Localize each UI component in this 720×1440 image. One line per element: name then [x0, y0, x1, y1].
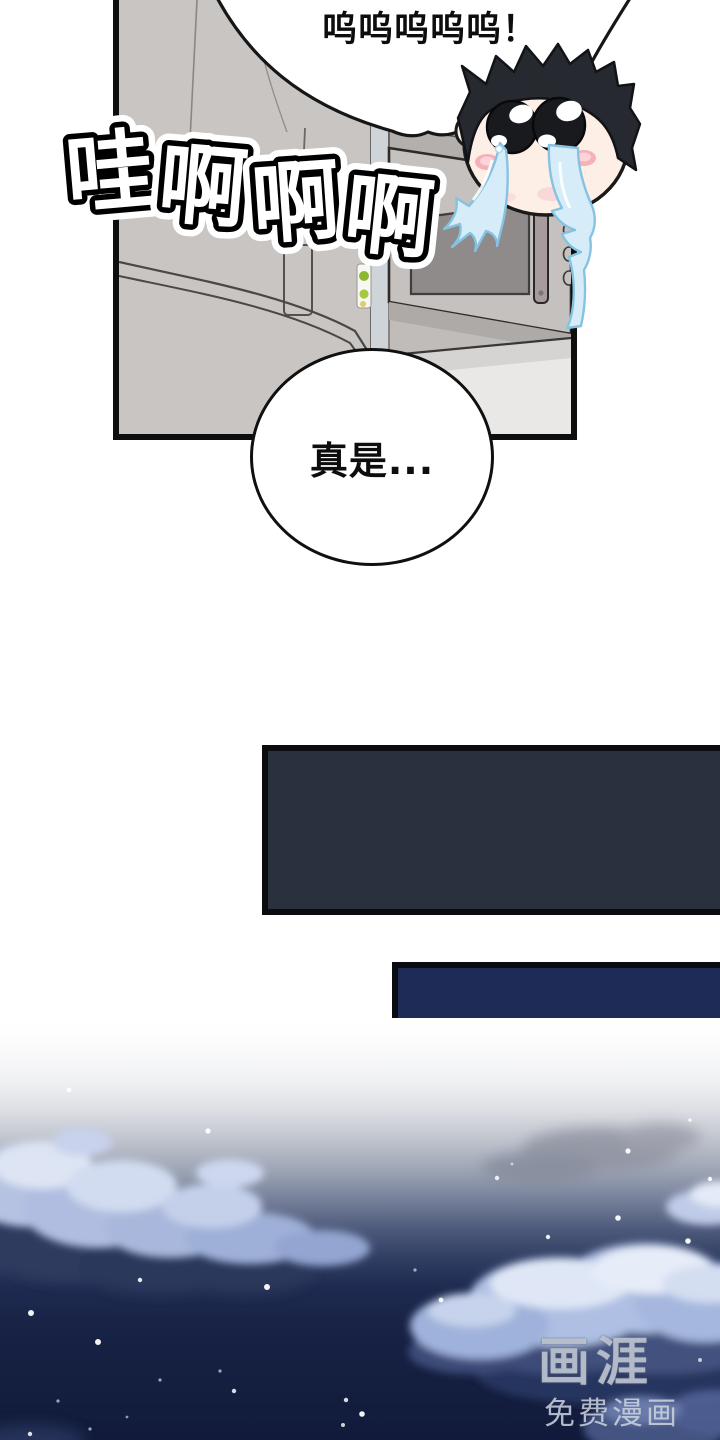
sfx-char: 啊 — [249, 148, 344, 257]
cloud-right-small — [666, 1181, 720, 1225]
sfx-scream-text: 哇 哇 啊 啊 啊 啊 啊 啊 — [28, 92, 468, 302]
panel-dark-wide — [262, 745, 720, 915]
cloud-wisp-center — [482, 1124, 700, 1184]
sfx-char: 啊 — [340, 161, 438, 273]
watermark-subtitle: 免费漫画 — [544, 1388, 680, 1433]
thought-bubble-text: 真是... — [310, 430, 434, 485]
watermark-logo: 画涯 — [538, 1320, 654, 1395]
sfx-char: 啊 — [155, 131, 252, 241]
tear-sparkle — [496, 146, 503, 153]
sfx-char: 哇 — [62, 117, 159, 227]
thought-bubble: 真是... — [250, 348, 494, 566]
crying-chibi-face — [440, 40, 650, 330]
comic-page: 呜呜呜呜呜！ 哇 哇 啊 啊 啊 啊 啊 啊 — [0, 0, 720, 1440]
cloud-corner-left — [0, 1424, 85, 1440]
